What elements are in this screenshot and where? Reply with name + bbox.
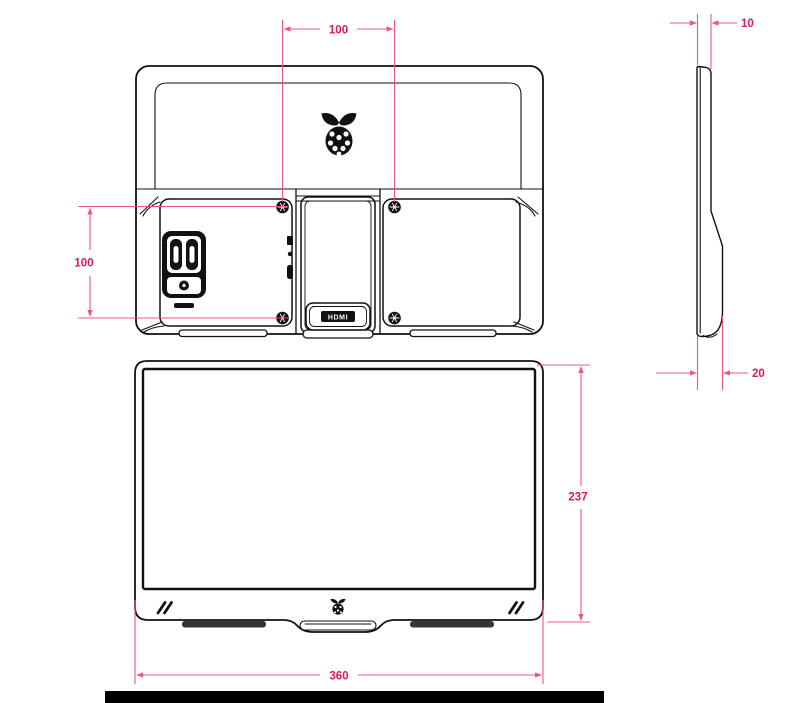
- stand-lip: [303, 330, 373, 338]
- front-tab: [300, 621, 376, 630]
- dim-label-side-base: 20: [752, 368, 765, 380]
- rear-foot-left: [179, 330, 267, 337]
- screen: [143, 369, 535, 589]
- dim-label-front-width: 360: [329, 671, 348, 683]
- dimension-side-top: 10: [670, 14, 754, 390]
- side-outline: [697, 67, 723, 337]
- vesa-screw-icon: [388, 312, 401, 325]
- front-view: [135, 361, 543, 632]
- technical-drawing: HDMI: [0, 0, 812, 703]
- dim-label-vesa-width: 100: [329, 25, 348, 37]
- dim-label-front-height: 237: [568, 492, 587, 504]
- hdmi-badge-label: HDMI: [328, 315, 348, 322]
- vesa-screw-icon: [388, 201, 401, 214]
- usb-port-icon: [287, 236, 293, 245]
- dimension-front-height: 237: [537, 365, 590, 622]
- usb-c-port-icon: [287, 265, 293, 279]
- side-view: [697, 67, 723, 338]
- dimension-side-base: 20: [656, 368, 765, 380]
- front-foot-left: [182, 621, 266, 628]
- dim-label-vesa-height: 100: [74, 258, 93, 270]
- front-foot-right: [410, 621, 494, 628]
- scale-bar: [105, 691, 604, 703]
- dim-label-side-top: 10: [741, 18, 754, 30]
- rear-foot-right: [410, 330, 496, 337]
- hdmi-badge: HDMI: [306, 303, 370, 330]
- rear-view: HDMI: [136, 66, 543, 338]
- control-buttons-icon: [162, 231, 206, 308]
- status-led-icon: [288, 252, 292, 256]
